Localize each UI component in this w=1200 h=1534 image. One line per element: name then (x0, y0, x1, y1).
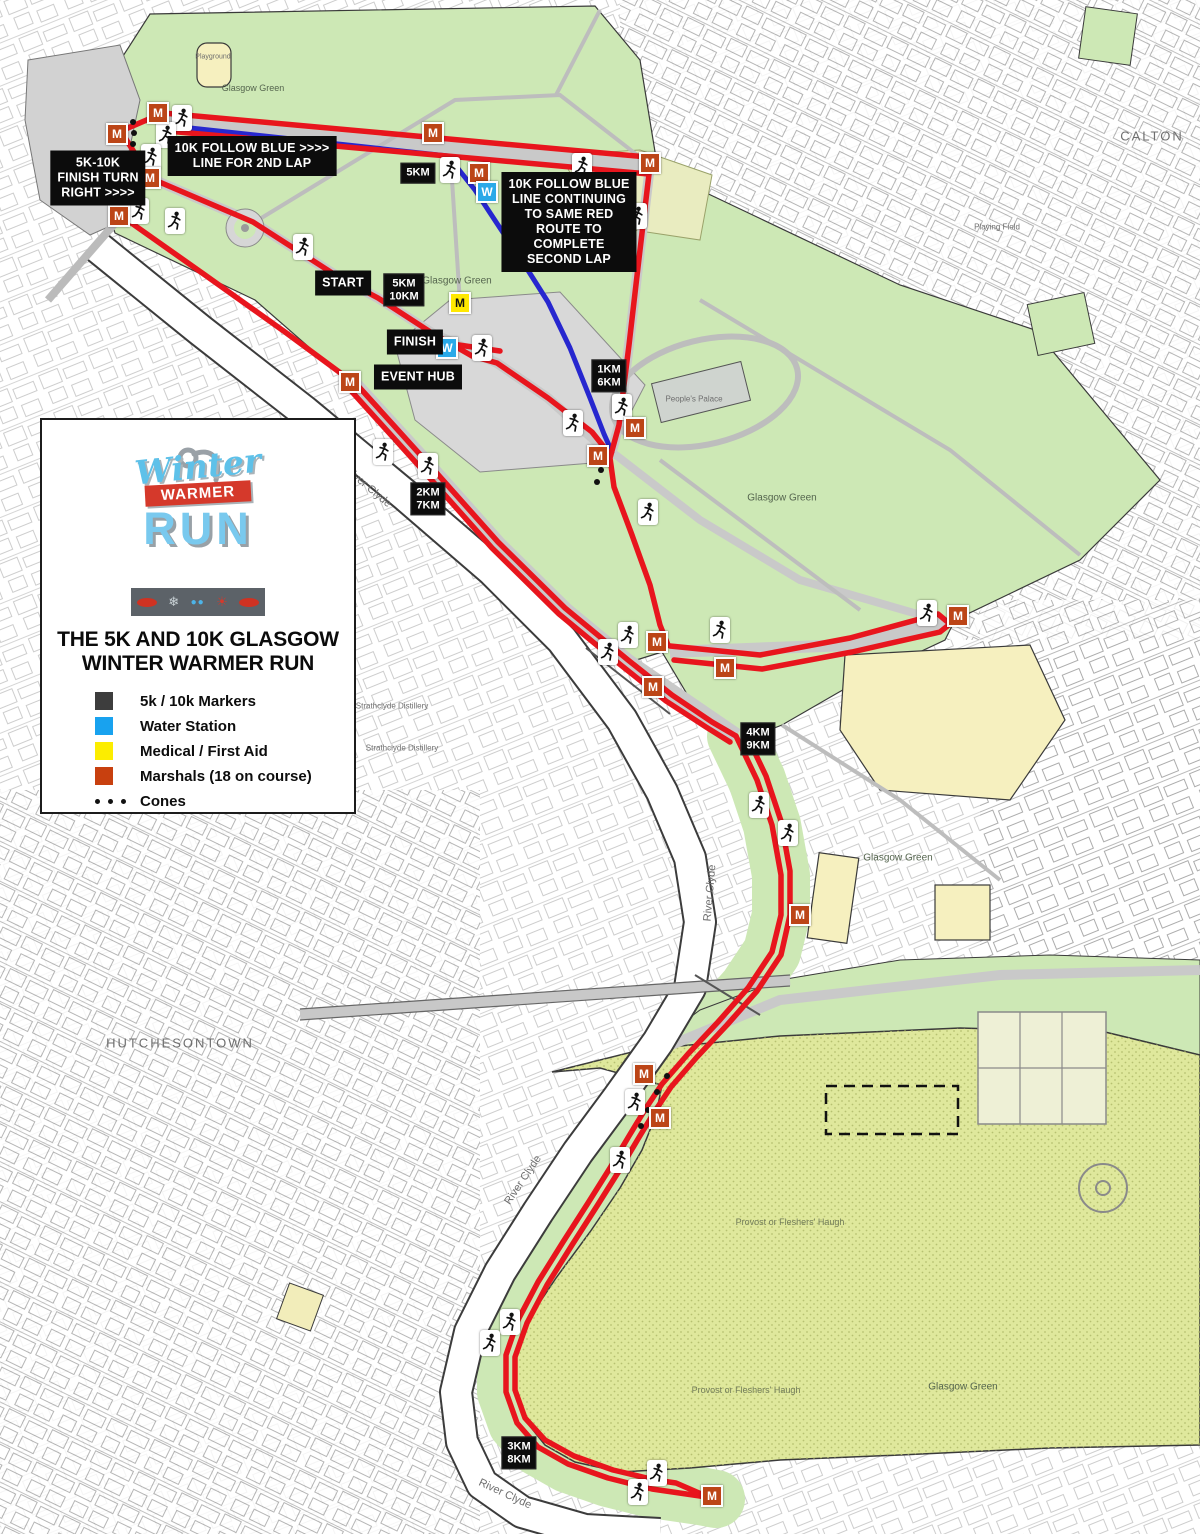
marshal-marker: M (422, 122, 444, 144)
legend-items: 5k / 10k MarkersWater StationMedical / F… (95, 692, 354, 810)
marshal-marker: M (714, 657, 736, 679)
marshal-marker: M (947, 605, 969, 627)
water-station-marker: W (476, 181, 498, 203)
map-label: River Clyde (477, 1477, 534, 1512)
legend-cone-dots (95, 799, 140, 804)
map-title-line1: THE 5K AND 10K GLASGOW (42, 628, 354, 652)
km-marker: 5KM (400, 163, 435, 184)
map-label: Strathclyde Distillery (356, 702, 428, 711)
marshal-marker: M (587, 445, 609, 467)
runner-icon (165, 208, 185, 234)
raindrops-icon: ●● (191, 597, 205, 608)
marshal-marker: M (646, 631, 668, 653)
km-marker: 2KM 7KM (410, 482, 445, 515)
map-label: Strathclyde Distillery (366, 744, 438, 753)
runner-icon (710, 617, 730, 643)
legend-item-label: Cones (140, 793, 186, 810)
runner-icon (618, 622, 638, 648)
callout-follow-blue-2nd-lap: 10K FOLLOW BLUE >>>> LINE FOR 2ND LAP (168, 136, 337, 176)
runner-icon (500, 1309, 520, 1335)
legend-item: Water Station (95, 717, 354, 735)
map-label: CALTON (1120, 129, 1184, 144)
runner-icon (778, 820, 798, 846)
km-marker: 1KM 6KM (591, 359, 626, 392)
runner-icon (563, 410, 583, 436)
legend-item: Cones (95, 792, 354, 810)
map-label: Glasgow Green (928, 1382, 997, 1393)
map-label: Playground (195, 54, 230, 61)
race-map-page: 5K-10K FINISH TURN RIGHT >>>>10K FOLLOW … (0, 0, 1200, 1534)
map-label: HUTCHESONTOWN (106, 1036, 254, 1051)
sun-icon: ☀ (216, 594, 228, 610)
map-label: Playing Field (974, 223, 1020, 232)
legend-panel: Winter WARMER RUN ❄ ●● ☀ THE 5K AND 10K … (40, 418, 356, 814)
runner-icon (480, 1330, 500, 1356)
map-label: River Clyde (502, 1153, 544, 1207)
callout-event-hub: EVENT HUB (374, 365, 462, 390)
runner-icon (440, 157, 460, 183)
logo-oval-icon (239, 598, 259, 607)
map-label: Provost or Fleshers' Haugh (736, 1217, 845, 1227)
map-title: THE 5K AND 10K GLASGOW WINTER WARMER RUN (42, 628, 354, 676)
runner-icon (625, 1089, 645, 1115)
runner-icon (293, 234, 313, 260)
legend-swatch (95, 767, 113, 785)
runner-icon (418, 453, 438, 479)
map-label: River Clyde (702, 864, 719, 922)
logo-oval-icon (137, 598, 157, 607)
map-title-line2: WINTER WARMER RUN (42, 652, 354, 676)
marshal-marker: M (108, 205, 130, 227)
callout-finish-turn: 5K-10K FINISH TURN RIGHT >>>> (50, 151, 145, 206)
legend-item-label: Medical / First Aid (140, 743, 268, 760)
map-label: Glasgow Green (222, 83, 285, 93)
runner-icon (628, 1479, 648, 1505)
runner-icon (917, 600, 937, 626)
logo-word-run: RUN (123, 506, 273, 551)
callout-follow-blue-continue: 10K FOLLOW BLUE LINE CONTINUING TO SAME … (501, 172, 636, 272)
km-marker: 5KM 10KM (383, 273, 424, 306)
runner-icon (610, 1147, 630, 1173)
marshal-marker: M (633, 1063, 655, 1085)
marshal-marker: M (147, 102, 169, 124)
map-label: Provost or Fleshers' Haugh (692, 1385, 801, 1395)
legend-swatch (95, 692, 113, 710)
marshal-marker: M (649, 1107, 671, 1129)
logo-footer-band: ❄ ●● ☀ (131, 588, 265, 616)
runner-icon (472, 335, 492, 361)
legend-item-label: 5k / 10k Markers (140, 693, 256, 710)
marshal-marker: M (701, 1485, 723, 1507)
legend-swatch (95, 717, 113, 735)
runner-icon (598, 639, 618, 665)
callout-finish: FINISH (387, 330, 443, 355)
legend-item: Medical / First Aid (95, 742, 354, 760)
marshal-marker: M (789, 904, 811, 926)
legend-item-label: Marshals (18 on course) (140, 768, 312, 785)
map-label: Glasgow Green (422, 276, 491, 287)
runner-icon (647, 1460, 667, 1486)
marshal-marker: M (624, 417, 646, 439)
map-label: People's Palace (665, 395, 722, 404)
map-label: Glasgow Green (863, 853, 932, 864)
runner-icon (638, 499, 658, 525)
marshal-marker: M (106, 123, 128, 145)
marshal-marker: M (639, 152, 661, 174)
km-marker: 3KM 8KM (501, 1436, 536, 1469)
legend-item: Marshals (18 on course) (95, 767, 354, 785)
km-marker: 4KM 9KM (740, 722, 775, 755)
legend-item: 5k / 10k Markers (95, 692, 354, 710)
snowflake-icon: ❄ (168, 594, 179, 610)
event-logo: Winter WARMER RUN ❄ ●● ☀ (123, 450, 273, 616)
runner-icon (373, 439, 393, 465)
map-label: Glasgow Green (747, 493, 816, 504)
medical-marker: M (449, 292, 471, 314)
callout-start: START (315, 271, 371, 296)
marshal-marker: M (339, 371, 361, 393)
runner-icon (749, 792, 769, 818)
legend-swatch (95, 742, 113, 760)
marshal-marker: M (642, 676, 664, 698)
legend-item-label: Water Station (140, 718, 236, 735)
